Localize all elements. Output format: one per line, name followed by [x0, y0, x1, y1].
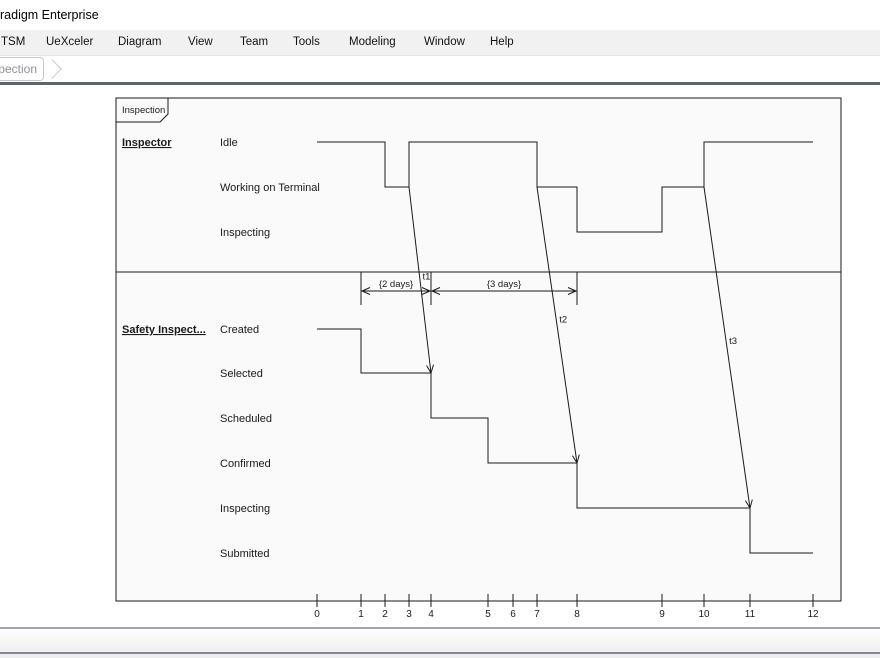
- menu-item-diagram[interactable]: Diagram: [118, 36, 161, 48]
- time-label-1: 1: [358, 609, 364, 620]
- time-label-3: 3: [406, 609, 412, 620]
- time-label-10: 10: [698, 609, 710, 620]
- message-label-t2[interactable]: t2: [559, 314, 567, 325]
- lifeline-name-inspector[interactable]: Inspector: [122, 137, 172, 149]
- time-label-9: 9: [659, 609, 665, 620]
- state-label-idle[interactable]: Idle: [220, 137, 238, 149]
- window-bottom-edge: [0, 654, 880, 658]
- state-label-confirmed[interactable]: Confirmed: [220, 458, 271, 470]
- menu-item-tsm[interactable]: TSM: [1, 36, 25, 48]
- time-label-6: 6: [510, 609, 516, 620]
- lifeline-name-safety-inspect[interactable]: Safety Inspect...: [122, 324, 206, 336]
- state-label-inspecting[interactable]: Inspecting: [220, 227, 270, 239]
- menu-item-view[interactable]: View: [188, 36, 213, 48]
- state-label-submitted[interactable]: Submitted: [220, 548, 270, 560]
- duration-label-3-days[interactable]: {3 days}: [487, 279, 521, 290]
- tab-bar: pection: [0, 56, 880, 85]
- state-label-inspecting[interactable]: Inspecting: [220, 503, 270, 515]
- menu-bar: TSMUeXcelerDiagramViewTeamToolsModelingW…: [0, 30, 880, 56]
- duration-label-2-days[interactable]: {2 days}: [379, 279, 413, 290]
- state-label-selected[interactable]: Selected: [220, 368, 263, 380]
- status-bar: [0, 629, 880, 652]
- state-label-scheduled[interactable]: Scheduled: [220, 413, 272, 425]
- diagram-frame[interactable]: [116, 98, 841, 601]
- state-label-working-on-terminal[interactable]: Working on Terminal: [220, 182, 320, 194]
- menu-item-tools[interactable]: Tools: [293, 36, 320, 48]
- chevron-right-icon: [42, 59, 62, 79]
- time-label-0: 0: [314, 609, 320, 620]
- message-label-t1[interactable]: t1: [423, 271, 431, 282]
- frame-name-label: Inspection: [122, 105, 165, 116]
- diagram-tab[interactable]: pection: [0, 57, 44, 81]
- time-label-8: 8: [574, 609, 580, 620]
- time-label-2: 2: [382, 609, 388, 620]
- menu-item-window[interactable]: Window: [424, 36, 465, 48]
- menu-item-help[interactable]: Help: [490, 36, 514, 48]
- time-label-11: 11: [745, 609, 756, 620]
- time-label-5: 5: [485, 609, 491, 620]
- menu-item-modeling[interactable]: Modeling: [349, 36, 396, 48]
- title-bar: radigm Enterprise: [0, 0, 880, 30]
- state-label-created[interactable]: Created: [220, 324, 259, 336]
- window-title: radigm Enterprise: [0, 8, 99, 22]
- diagram-tab-label: pection: [0, 62, 37, 76]
- time-label-4: 4: [428, 609, 434, 620]
- menu-item-uexceler[interactable]: UeXceler: [46, 36, 93, 48]
- diagram-canvas[interactable]: InspectionInspectorIdleWorking on Termin…: [0, 85, 880, 627]
- menu-item-team[interactable]: Team: [240, 36, 268, 48]
- time-label-12: 12: [807, 609, 819, 620]
- time-label-7: 7: [534, 609, 540, 620]
- timing-diagram[interactable]: InspectionInspectorIdleWorking on Termin…: [0, 85, 880, 627]
- message-label-t3[interactable]: t3: [729, 336, 737, 347]
